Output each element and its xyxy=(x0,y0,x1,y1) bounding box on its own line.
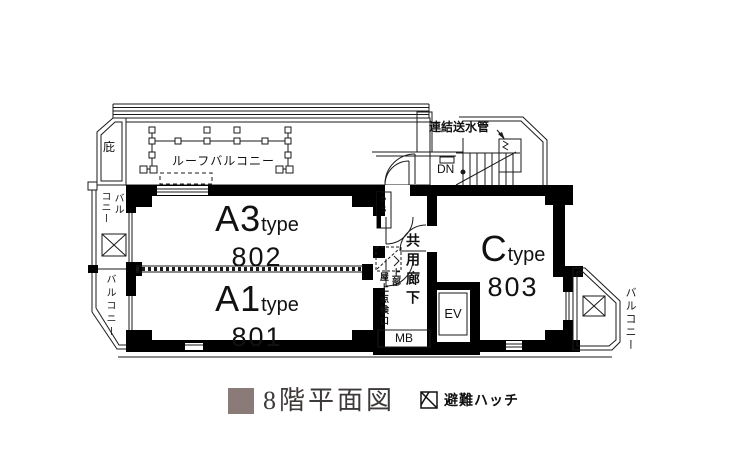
balcony-right-label: バルコニー xyxy=(624,287,635,352)
legend-floor-swatch xyxy=(228,388,254,414)
roof-hatch-sub-label: 上部 xyxy=(391,268,400,286)
down-label: DN xyxy=(437,163,454,175)
room-c-number: 803 xyxy=(450,272,576,303)
floor-plan-page: ルーフバルコニー 庇 バル コニー バルコニー バルコニー 連結送水管 DN A… xyxy=(0,0,730,470)
legend-hatch-label: 避難ハッチ xyxy=(444,393,519,407)
balcony-left-top-label-col2: コニー xyxy=(99,191,109,224)
balcony-left-bottom-label: バルコニー xyxy=(104,274,114,339)
corridor-label: 共用廊下 xyxy=(406,233,420,309)
evacuation-hatch-right xyxy=(583,296,605,316)
room-a1: A1type 801 xyxy=(146,278,368,353)
room-a3-number: 802 xyxy=(146,242,368,273)
room-a3: A3type 802 xyxy=(146,198,368,273)
roof-balcony-structure xyxy=(97,104,430,185)
elevator-label: EV xyxy=(439,307,467,320)
room-a1-number: 801 xyxy=(146,322,368,353)
legend-hatch-symbol xyxy=(421,392,437,408)
room-a1-type-suffix: type xyxy=(261,294,299,316)
room-c-type: C xyxy=(481,228,508,269)
evacuation-hatch-left xyxy=(102,234,126,256)
room-c: Ctype 803 xyxy=(450,228,576,303)
pipe-shaft-label: PS xyxy=(379,196,387,214)
roof-balcony-label: ルーフバルコニー xyxy=(172,155,275,167)
room-a1-type: A1 xyxy=(215,278,261,319)
room-a3-type: A3 xyxy=(215,198,261,239)
balcony-left-top-label-col1: バル xyxy=(112,193,122,215)
roof-hatch-main-label: 屋上点検口 xyxy=(379,272,388,327)
room-c-type-suffix: type xyxy=(508,244,546,266)
eaves-label: 庇 xyxy=(103,141,115,153)
room-a3-type-suffix: type xyxy=(261,214,299,236)
meter-box-label: MB xyxy=(378,332,430,344)
standpipe-label: 連結送水管 xyxy=(429,121,489,133)
legend-floor-title: 8階平面図 xyxy=(263,388,395,414)
